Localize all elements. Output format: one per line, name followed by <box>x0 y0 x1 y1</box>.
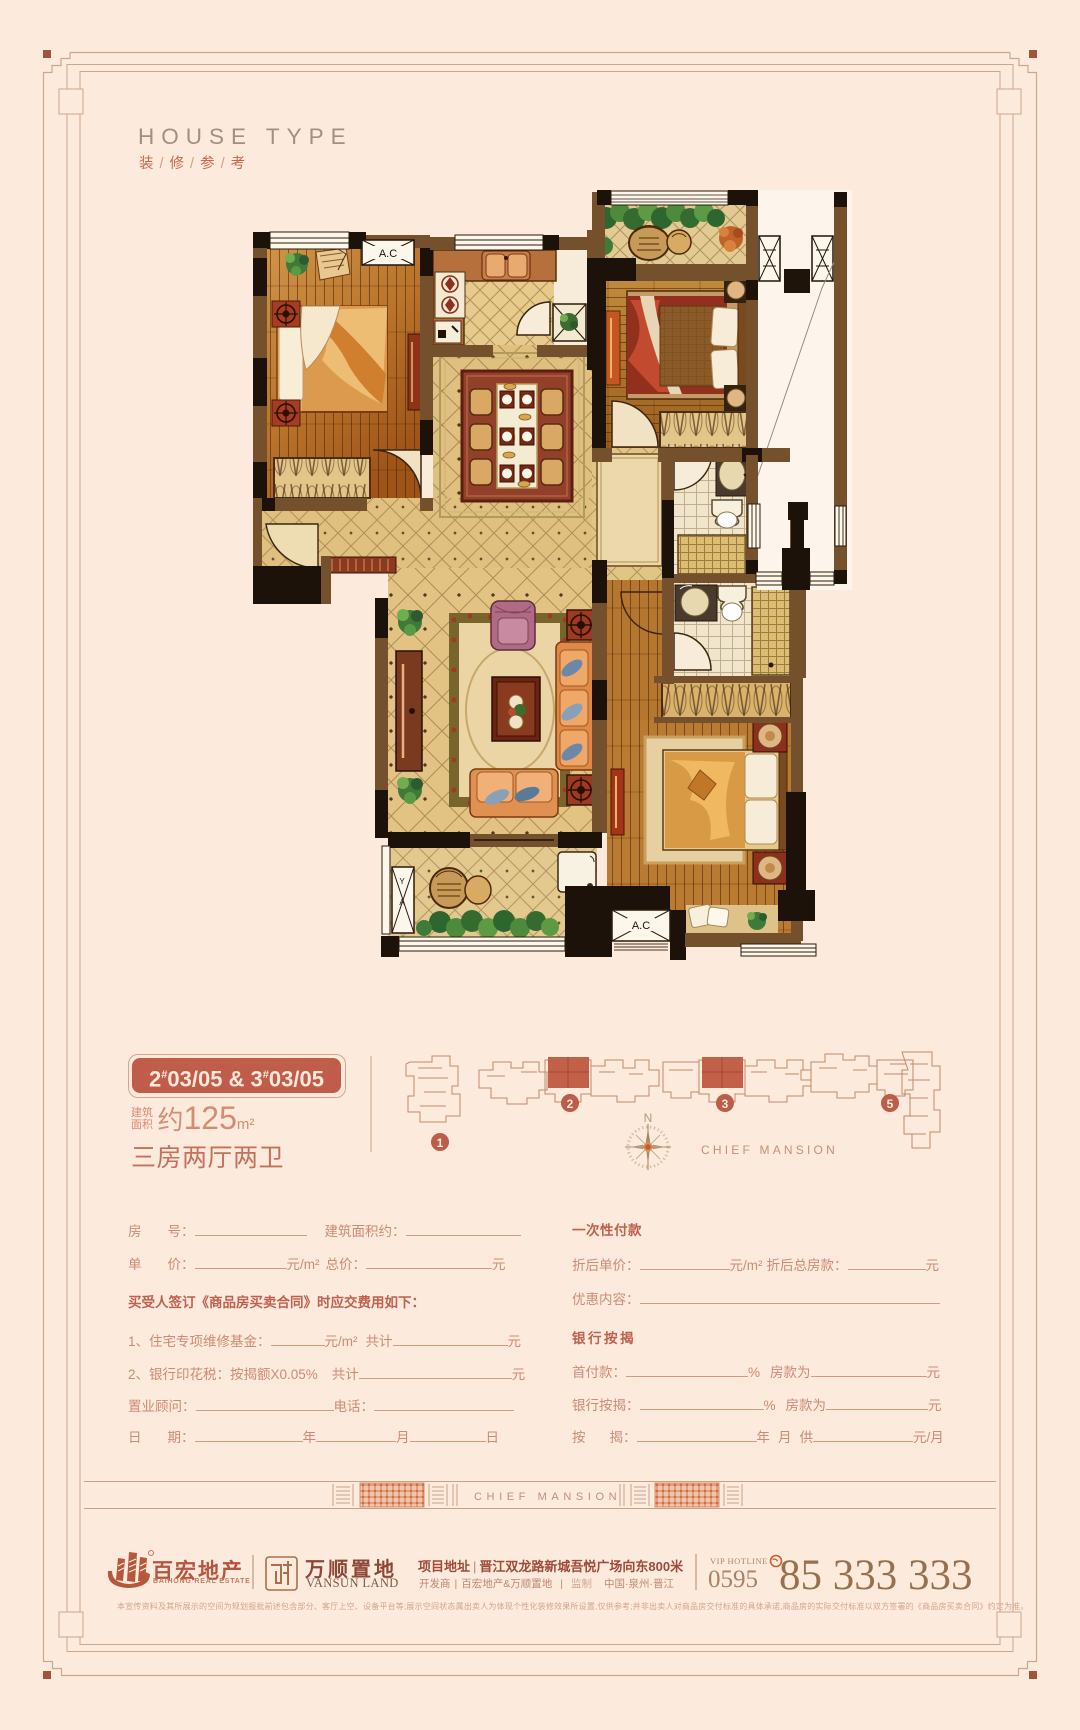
svg-text:CHIEF MANSION: CHIEF MANSION <box>474 1491 621 1503</box>
svg-text:Y: Y <box>399 877 405 886</box>
svg-text:A.C: A.C <box>632 920 650 932</box>
svg-text:5: 5 <box>887 1097 894 1111</box>
svg-text:3: 3 <box>722 1097 729 1111</box>
svg-text:2: 2 <box>567 1097 574 1111</box>
svg-text:A: A <box>399 898 405 907</box>
svg-text:CHIEF MANSION: CHIEF MANSION <box>701 1143 838 1157</box>
svg-text:N: N <box>644 1111 653 1125</box>
svg-text:1: 1 <box>437 1136 444 1150</box>
svg-text:A.C: A.C <box>379 248 397 260</box>
